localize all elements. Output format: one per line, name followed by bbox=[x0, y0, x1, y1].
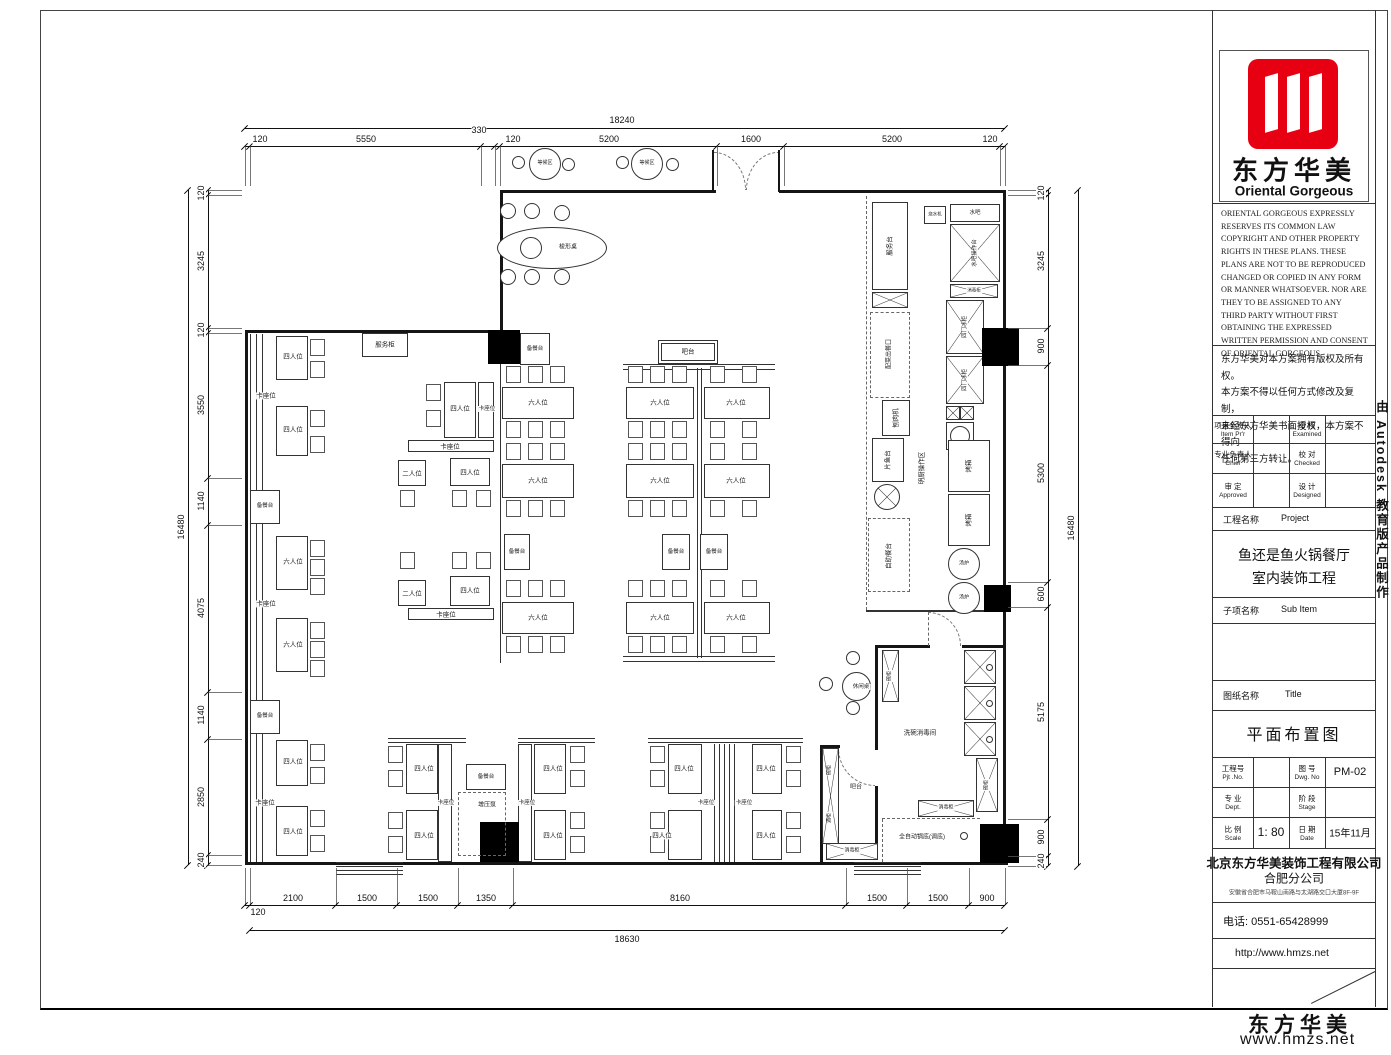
extension-line bbox=[245, 868, 246, 905]
extension-line bbox=[969, 868, 970, 905]
chair bbox=[528, 580, 543, 597]
chair bbox=[550, 366, 565, 383]
plan-label: 卡座位 bbox=[435, 611, 457, 618]
dimension-value: 2850 bbox=[196, 787, 206, 807]
dwg-no-value: PM-02 bbox=[1334, 766, 1366, 778]
dimension-value: 1500 bbox=[418, 893, 438, 903]
plan-label: 备餐台 bbox=[526, 346, 545, 352]
plan-label: 四人位 bbox=[282, 758, 304, 765]
wall bbox=[500, 190, 716, 193]
door-arc bbox=[838, 748, 875, 786]
chair bbox=[506, 500, 521, 517]
dimension-value: 16480 bbox=[1066, 515, 1076, 540]
plan-label: 六人位 bbox=[725, 477, 747, 484]
plan-label: 水吧 bbox=[968, 210, 981, 216]
titleblock-grid-line bbox=[1213, 530, 1375, 531]
dimension-value: 120 bbox=[252, 134, 267, 144]
chair bbox=[710, 500, 725, 517]
bench-line bbox=[623, 656, 775, 657]
dimension-value: 120 bbox=[196, 322, 206, 337]
chair bbox=[628, 636, 643, 653]
plan-label: 酒柜 bbox=[827, 812, 833, 824]
chair bbox=[550, 636, 565, 653]
plan-label: 卡座位 bbox=[437, 800, 456, 806]
extension-line bbox=[208, 333, 242, 334]
round-seat bbox=[960, 832, 968, 840]
dimension-value: 240 bbox=[1036, 853, 1046, 868]
extension-line bbox=[208, 739, 242, 740]
titleblock-grid-line bbox=[1213, 507, 1375, 508]
chair bbox=[476, 552, 491, 569]
extension-line bbox=[1005, 146, 1006, 186]
extension-line bbox=[1008, 607, 1048, 608]
round-seat bbox=[554, 269, 570, 285]
dashed-line bbox=[866, 196, 867, 610]
plan-label: 服务台 bbox=[886, 235, 893, 257]
wall bbox=[962, 645, 1004, 648]
dimension-value: 18630 bbox=[614, 934, 639, 944]
round-seat bbox=[500, 269, 516, 285]
dimension-value: 3550 bbox=[196, 395, 206, 415]
plan-label: 等候区 bbox=[631, 148, 663, 180]
titleblock-grid-line bbox=[1213, 597, 1375, 598]
field-item-principal: 项目负责人Item Pr'r bbox=[1213, 415, 1253, 443]
chair bbox=[742, 366, 757, 383]
extension-line bbox=[250, 868, 251, 905]
project-label-en: Project bbox=[1281, 513, 1309, 523]
company-phone: 电话: 0551-65428999 bbox=[1223, 913, 1328, 929]
plan-label: 六人位 bbox=[725, 614, 747, 621]
plan-label: 自助餐台 bbox=[885, 542, 892, 570]
extension-line bbox=[1008, 582, 1048, 583]
round-seat bbox=[846, 651, 860, 665]
chair bbox=[528, 636, 543, 653]
extension-line bbox=[208, 195, 242, 196]
plan-label: 卡座位 bbox=[735, 800, 754, 806]
dim-tick bbox=[1001, 125, 1008, 132]
plan-label: 碗柜 bbox=[887, 670, 893, 682]
dimension-value: 900 bbox=[979, 893, 994, 903]
bench-line bbox=[518, 742, 595, 743]
plan-label: 备餐台 bbox=[667, 549, 686, 555]
bench-line bbox=[388, 742, 466, 743]
bench-line bbox=[500, 333, 501, 663]
chair bbox=[742, 580, 757, 597]
round-seat bbox=[500, 203, 516, 219]
plan-label: 四人位 bbox=[282, 828, 304, 835]
chair bbox=[476, 490, 491, 507]
chair bbox=[742, 421, 757, 438]
plan-label: 四门冰柜 bbox=[962, 368, 968, 392]
extension-line bbox=[458, 868, 459, 905]
plan-label: 汤炉 bbox=[958, 561, 970, 567]
plan-label: 四门冰柜 bbox=[962, 315, 968, 339]
field-checked: 校 对Checked bbox=[1289, 443, 1325, 473]
wall bbox=[875, 645, 930, 648]
chair bbox=[742, 443, 757, 460]
dimension-value: 2100 bbox=[283, 893, 303, 903]
project-name-line2: 室内装饰工程 bbox=[1252, 568, 1336, 588]
wall bbox=[1003, 190, 1006, 865]
extension-line bbox=[907, 868, 908, 905]
wall bbox=[779, 190, 1006, 193]
field-examined: 审 核Examined bbox=[1289, 415, 1325, 443]
chair bbox=[570, 746, 585, 763]
plan-label: 四人位 bbox=[413, 832, 435, 839]
chair bbox=[310, 540, 325, 557]
extension-line bbox=[208, 478, 242, 479]
entry-mat bbox=[336, 862, 403, 875]
extension-line bbox=[208, 190, 242, 191]
chair bbox=[650, 580, 665, 597]
chair bbox=[310, 767, 325, 784]
plan-label: 配菜出餐口 bbox=[887, 338, 894, 370]
plan-label: 六人位 bbox=[527, 614, 549, 621]
plan-label: 六人位 bbox=[649, 399, 671, 406]
chair bbox=[628, 500, 643, 517]
round-seat bbox=[554, 205, 570, 221]
plan-label: 二人位 bbox=[401, 590, 423, 597]
bench-line bbox=[518, 738, 595, 739]
dimension-value: 1500 bbox=[867, 893, 887, 903]
extension-line bbox=[245, 146, 246, 186]
plan-label: 碗柜 bbox=[984, 779, 990, 791]
dimension-value: 900 bbox=[1036, 829, 1046, 844]
date-value: 15年11月 bbox=[1329, 825, 1371, 840]
chair bbox=[388, 812, 403, 829]
dimension-value: 120 bbox=[505, 134, 520, 144]
bench-line bbox=[719, 744, 720, 862]
round-seat bbox=[524, 269, 540, 285]
chair bbox=[506, 580, 521, 597]
round-seat bbox=[616, 156, 629, 169]
logo-box: 东方华美 Oriental Gorgeous bbox=[1219, 50, 1369, 202]
plan-label: 消毒柜 bbox=[966, 289, 982, 294]
titleblock-grid-line bbox=[1213, 902, 1375, 903]
titleblock-grid-line bbox=[1213, 203, 1375, 204]
dashed-equipment-zone bbox=[458, 792, 506, 856]
round-seat bbox=[986, 700, 993, 707]
field-approved: 审 定Approved bbox=[1213, 473, 1253, 507]
round-seat bbox=[666, 158, 679, 171]
plan-label: 备餐台 bbox=[477, 774, 496, 780]
chair bbox=[310, 810, 325, 827]
company-logo-icon bbox=[1248, 59, 1338, 149]
round-seat bbox=[986, 664, 993, 671]
extension-line bbox=[208, 865, 242, 866]
plan-label: 四人位 bbox=[542, 765, 564, 772]
extension-line bbox=[495, 146, 496, 186]
watermark-url: www.hmzs.net bbox=[1240, 1031, 1355, 1049]
plan-label: 休闲桌 bbox=[852, 684, 871, 690]
company-branch: 合肥分公司 bbox=[1264, 870, 1324, 887]
chair bbox=[310, 641, 325, 658]
plan-label: 洗碗消毒间 bbox=[903, 729, 938, 736]
chair bbox=[388, 770, 403, 787]
logo-en: Oriental Gorgeous bbox=[1235, 184, 1354, 199]
extension-line bbox=[208, 692, 242, 693]
bench-line bbox=[623, 364, 775, 365]
equipment-box bbox=[822, 748, 839, 844]
chair bbox=[506, 443, 521, 460]
plan-label: 汤炉 bbox=[958, 595, 970, 601]
chair bbox=[528, 366, 543, 383]
structural-column bbox=[980, 824, 1019, 863]
field-dwg-no: 图 号Dwg. No bbox=[1289, 757, 1325, 787]
chair bbox=[310, 436, 325, 453]
titleblock-grid-line bbox=[1213, 710, 1375, 711]
structural-column bbox=[984, 585, 1011, 612]
chair bbox=[710, 580, 725, 597]
dimension-value: 4075 bbox=[196, 598, 206, 618]
dashed-line bbox=[882, 819, 883, 862]
bench-line bbox=[648, 738, 803, 739]
field-pjt-no: 工程号Pjt .No. bbox=[1213, 757, 1253, 787]
project-label-cn: 工程名称 bbox=[1223, 513, 1259, 526]
chair bbox=[650, 443, 665, 460]
bench-line bbox=[724, 744, 725, 862]
dimension-line bbox=[245, 128, 1005, 129]
dimension-value: 5550 bbox=[356, 134, 376, 144]
chair bbox=[310, 559, 325, 576]
bench-line bbox=[256, 334, 257, 862]
plan-label: 烤箱 bbox=[965, 459, 972, 474]
corner-cut-line bbox=[1311, 971, 1376, 1004]
company-address: 安徽省合肥市马鞍山南路与太湖路交口大厦8F-9F bbox=[1229, 888, 1359, 897]
chair bbox=[672, 636, 687, 653]
extension-line bbox=[397, 868, 398, 905]
bench-line bbox=[729, 744, 730, 862]
door-arc bbox=[746, 152, 778, 190]
chair bbox=[310, 835, 325, 852]
dimension-value: 1140 bbox=[196, 491, 206, 510]
plan-label: 四人位 bbox=[449, 405, 471, 412]
plan-label: 六人位 bbox=[649, 614, 671, 621]
plan-label: 卡座位 bbox=[518, 800, 537, 806]
chair bbox=[628, 421, 643, 438]
round-seat bbox=[819, 677, 833, 691]
dimension-value: 3245 bbox=[196, 251, 206, 271]
chair bbox=[786, 746, 801, 763]
dimension-value: 1350 bbox=[476, 893, 496, 903]
wall bbox=[875, 786, 878, 846]
dim-tick bbox=[1001, 927, 1008, 934]
plan-label: 六人位 bbox=[725, 399, 747, 406]
extension-line bbox=[1008, 365, 1048, 366]
dimension-value: 1140 bbox=[196, 705, 206, 724]
floor-plan: 服务柜四人位卡座位四人位备餐台六人位卡座位六人位备餐台四人位卡座位四人位四人位卡… bbox=[0, 0, 1391, 1055]
extension-line bbox=[717, 146, 718, 186]
field-stage: 阶 段Stage bbox=[1289, 787, 1325, 817]
plan-label: 四人位 bbox=[755, 832, 777, 839]
dimension-value: 3245 bbox=[1036, 251, 1046, 271]
scale-value: 1: 80 bbox=[1258, 825, 1285, 839]
plan-label: 六人位 bbox=[527, 477, 549, 484]
chair bbox=[672, 366, 687, 383]
titleblock-grid-line bbox=[1213, 345, 1375, 346]
chair bbox=[550, 500, 565, 517]
dimension-value: 120 bbox=[1036, 185, 1046, 200]
equipment-box bbox=[960, 406, 974, 420]
subitem-label-cn: 子项名称 bbox=[1223, 604, 1259, 617]
plan-label: 卡座位 bbox=[439, 443, 461, 450]
dimension-line bbox=[1078, 190, 1079, 866]
dashed-line bbox=[882, 818, 980, 819]
title-label-en: Title bbox=[1285, 689, 1302, 699]
plan-label: 消毒柜 bbox=[937, 805, 954, 811]
equipment-box bbox=[872, 292, 908, 308]
dimension-value: 120 bbox=[196, 185, 206, 200]
dimension-value: 8160 bbox=[670, 893, 690, 903]
round-seat bbox=[524, 203, 540, 219]
plan-label: 备餐台 bbox=[705, 549, 724, 555]
subitem-label-en: Sub Item bbox=[1281, 604, 1317, 614]
extension-line bbox=[1008, 328, 1048, 329]
plan-label: 等候区 bbox=[529, 148, 561, 180]
dimension-value: 1500 bbox=[928, 893, 948, 903]
door-arc bbox=[928, 612, 961, 646]
titleblock-grid-line bbox=[1213, 968, 1375, 969]
chair bbox=[710, 443, 725, 460]
chair bbox=[310, 410, 325, 427]
title-label-cn: 图纸名称 bbox=[1223, 689, 1259, 702]
bench-line bbox=[388, 738, 466, 739]
plan-label: 卡座位 bbox=[255, 600, 277, 607]
chair bbox=[528, 443, 543, 460]
extension-line bbox=[500, 146, 501, 186]
chair bbox=[506, 421, 521, 438]
chair bbox=[570, 836, 585, 853]
chair bbox=[786, 812, 801, 829]
titleblock-grid-line bbox=[1213, 623, 1375, 624]
chair bbox=[710, 421, 725, 438]
plan-label: 烤箱 bbox=[965, 513, 972, 528]
chair bbox=[742, 500, 757, 517]
chair bbox=[310, 339, 325, 356]
plan-label: 卡座位 bbox=[254, 799, 276, 806]
bench-line bbox=[648, 742, 803, 743]
plan-label: 四人位 bbox=[755, 765, 777, 772]
plan-label: 片鱼台 bbox=[884, 449, 891, 471]
chair bbox=[628, 580, 643, 597]
round-seat bbox=[986, 736, 993, 743]
drawing-title: 平面布置图 bbox=[1246, 721, 1341, 745]
chair bbox=[388, 836, 403, 853]
chair bbox=[650, 500, 665, 517]
titleblock-grid-line bbox=[1325, 757, 1326, 848]
equipment-box bbox=[946, 406, 960, 420]
plan-label: 吧台 bbox=[849, 785, 863, 792]
chair bbox=[452, 490, 467, 507]
plan-label: 四人位 bbox=[542, 832, 564, 839]
dimension-value: 5300 bbox=[1036, 463, 1046, 483]
dimension-line bbox=[245, 905, 1005, 906]
extension-line bbox=[1000, 146, 1001, 186]
plan-label: 卡座位 bbox=[697, 800, 716, 806]
dimension-line bbox=[188, 190, 189, 865]
chair bbox=[570, 812, 585, 829]
bench-line bbox=[250, 334, 251, 862]
entry-mat bbox=[854, 862, 921, 875]
plan-label: 刨肉机 bbox=[892, 407, 899, 429]
dimension-value: 240 bbox=[196, 852, 206, 867]
extension-line bbox=[846, 868, 847, 905]
chair bbox=[550, 421, 565, 438]
dimension-value: 1500 bbox=[357, 893, 377, 903]
chair bbox=[550, 580, 565, 597]
dim-tick bbox=[1074, 863, 1081, 870]
dimension-value: 1600 bbox=[741, 134, 761, 144]
dimension-line bbox=[245, 146, 1005, 147]
company-website: http://www.hmzs.net bbox=[1235, 947, 1329, 959]
extension-line bbox=[208, 855, 242, 856]
drawing-sheet: 服务柜四人位卡座位四人位备餐台六人位卡座位六人位备餐台四人位卡座位四人位四人位卡… bbox=[0, 0, 1391, 1055]
chair bbox=[506, 636, 521, 653]
titleblock-grid-line bbox=[1253, 757, 1254, 848]
dimension-value: 16480 bbox=[176, 514, 186, 539]
chair bbox=[310, 660, 325, 677]
chair bbox=[628, 443, 643, 460]
chair bbox=[452, 552, 467, 569]
chair bbox=[672, 580, 687, 597]
bench-line bbox=[701, 368, 702, 658]
extension-line bbox=[513, 868, 514, 905]
round-seat bbox=[512, 156, 525, 169]
dimension-value: 120 bbox=[250, 907, 265, 917]
dimension-line bbox=[1048, 190, 1049, 866]
wall bbox=[875, 648, 878, 750]
dimension-value: 600 bbox=[1036, 586, 1046, 601]
plan-label: 全自动锅底(调底) bbox=[898, 835, 946, 842]
dimension-value: 18240 bbox=[609, 115, 634, 125]
dimension-value: 120 bbox=[982, 134, 997, 144]
chair bbox=[650, 421, 665, 438]
plan-label: 四人位 bbox=[459, 587, 481, 594]
plan-label: 梭形桌 bbox=[558, 245, 578, 252]
extension-line bbox=[336, 868, 337, 905]
dimension-value: 5200 bbox=[599, 134, 619, 144]
logo-cn: 东方华美 bbox=[1232, 151, 1356, 188]
field-chief: 专业负责人Chief bbox=[1213, 443, 1253, 473]
plan-label: 四人位 bbox=[673, 765, 695, 772]
plan-label: 吧台 bbox=[681, 348, 696, 355]
plan-label: 增压泵 bbox=[477, 803, 497, 810]
plan-label: 六人位 bbox=[282, 641, 304, 648]
autodesk-edu-strip: 由 Autodesk 教育版产品制作 bbox=[1374, 400, 1391, 730]
plan-label: 明厨操作区 bbox=[918, 451, 925, 486]
copyright-en: ORIENTAL GORGEOUS EXPRESSLY RESERVES ITS… bbox=[1221, 208, 1368, 360]
plan-label: 消毒柜 bbox=[843, 848, 860, 854]
chair bbox=[650, 746, 665, 763]
chair bbox=[650, 770, 665, 787]
stove-circle bbox=[874, 484, 900, 510]
field-date: 日 期Date bbox=[1289, 817, 1325, 848]
titleblock-grid-line bbox=[1213, 938, 1375, 939]
bench-line bbox=[697, 368, 698, 658]
plan-label: 卡座位 bbox=[478, 406, 497, 412]
chair bbox=[400, 490, 415, 507]
chair bbox=[672, 421, 687, 438]
titleblock-grid-line bbox=[1325, 415, 1326, 507]
chair bbox=[710, 366, 725, 383]
titleblock-grid-line bbox=[1253, 415, 1254, 507]
chair bbox=[310, 361, 325, 378]
chair bbox=[672, 443, 687, 460]
bench-line bbox=[262, 334, 263, 862]
table bbox=[668, 810, 702, 860]
plan-label: 碗柜 bbox=[827, 764, 833, 776]
chair bbox=[528, 421, 543, 438]
